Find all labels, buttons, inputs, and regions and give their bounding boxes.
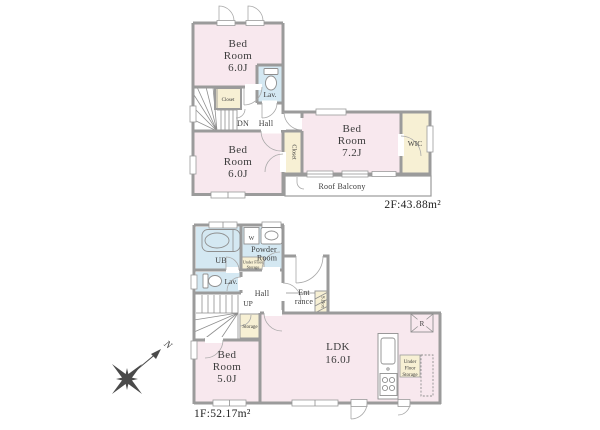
label-storage: Storage [242,325,258,330]
room-label-bedroom-left-l2: Room [224,156,253,168]
label-washer: W [249,236,255,242]
compass-arrowhead-icon [151,349,161,359]
room-label-bedroom-left-l3: 6.0J [228,168,248,180]
label-hall-1f: Hall [255,289,270,298]
room-label-bedroom-left-l1: Bed [229,144,248,156]
room-label-bedroom-top-l3: 6.0J [228,62,248,74]
compass-north-label: N [161,338,175,352]
toilet-bowl-2f-icon [266,76,277,90]
label-ufs-ldk-l2: Floor [405,367,416,372]
label-hall-2f: Hall [259,119,274,128]
toilet-bowl-1f-icon [209,276,222,287]
label-ufs-ldk-l3: Storage [402,373,418,378]
label-sbox: S.Box [320,296,325,309]
room-label-bedroom-top-l2: Room [224,50,253,62]
label-ub: UB [215,256,227,265]
floor-2f: Bed Room 6.0J Closet Lav. DN Hall Bed Ro… [190,6,441,211]
fixtures-2f [264,69,278,91]
room-label-ldk-l2: 16.0J [325,354,351,366]
label-fridge: R [420,320,425,328]
room-label-bedroom-main-l2: Room [338,135,367,147]
room-label-bedroom-main-l3: 7.2J [342,147,362,159]
floor-1f: UB W Powder Room Under Floor Storage Lav… [191,222,441,420]
label-dn-2f: DN [237,119,249,128]
room-label-bedroom-top-l1: Bed [229,38,248,50]
vanity-icon [261,228,282,245]
label-lav-2f: Lav. [263,90,276,99]
label-wic-2f: WIC [408,139,423,148]
toilet-tank-2f-icon [264,69,278,75]
room-label-bedroom-1f-l1: Bed [218,349,237,361]
area-label-1f: 1F:52.17m² [194,408,251,420]
compass-rose: N [112,338,175,394]
room-label-bedroom-1f-l3: 5.0J [217,373,237,385]
label-entrance-l2: rance [295,297,314,306]
label-closet-top-2f: Closet [222,98,235,103]
floor-plan-svg: Bed Room 6.0J Closet Lav. DN Hall Bed Ro… [0,0,600,430]
label-ufs-powder-l2: Storage [247,265,260,270]
area-label-2f: 2F:43.88m² [384,199,441,211]
label-up: UP [243,299,253,308]
label-roof-balcony: Roof Balcony [318,182,365,191]
room-label-ldk-l1: LDK [326,341,350,353]
floorplan-canvas: Bed Room 6.0J Closet Lav. DN Hall Bed Ro… [0,0,600,430]
label-entrance-l1: Ent [298,288,310,297]
label-lav-1f: Lav. [224,277,237,286]
label-ufs-ldk-l1: Under [404,360,417,365]
room-label-bedroom-main-l1: Bed [343,123,362,135]
toilet-tank-1f-icon [203,274,208,288]
room-label-bedroom-1f-l2: Room [213,361,242,373]
label-closet-side-2f: Closet [291,144,297,160]
